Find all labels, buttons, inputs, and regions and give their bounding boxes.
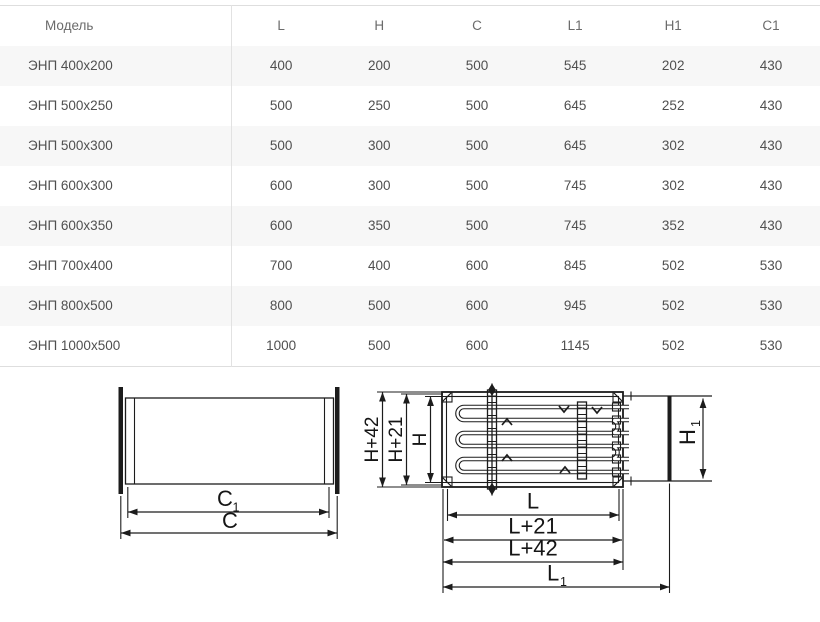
duct-flange-right bbox=[335, 387, 340, 494]
value-cell: 500 bbox=[428, 46, 526, 86]
value-cell: 545 bbox=[526, 46, 624, 86]
value-cell: 645 bbox=[526, 86, 624, 126]
value-cell: 430 bbox=[722, 206, 820, 246]
value-cell: 700 bbox=[231, 246, 330, 286]
value-cell: 400 bbox=[330, 246, 428, 286]
header-row: Модель L H C L1 H1 C1 bbox=[0, 6, 820, 47]
table-header: Модель L H C L1 H1 C1 bbox=[0, 6, 820, 47]
table-body: ЭНП 400x200 400 200 500 545 202 430 ЭНП … bbox=[0, 46, 820, 367]
column-header-model: Модель bbox=[0, 6, 231, 47]
value-cell: 350 bbox=[330, 206, 428, 246]
column-header-h1: H1 bbox=[624, 6, 722, 47]
value-cell: 352 bbox=[624, 206, 722, 246]
column-header-c1: C1 bbox=[722, 6, 820, 47]
value-cell: 745 bbox=[526, 206, 624, 246]
model-cell: ЭНП 1000x500 bbox=[0, 326, 231, 367]
dimension-h42-label: H+42 bbox=[362, 417, 383, 463]
value-cell: 500 bbox=[231, 126, 330, 166]
technical-drawings: C 1 C bbox=[0, 365, 820, 622]
value-cell: 530 bbox=[722, 286, 820, 326]
value-cell: 500 bbox=[428, 126, 526, 166]
value-cell: 600 bbox=[428, 246, 526, 286]
value-cell: 302 bbox=[624, 166, 722, 206]
value-cell: 500 bbox=[428, 206, 526, 246]
table-row: ЭНП 700x400 700 400 600 845 502 530 bbox=[0, 246, 820, 286]
value-cell: 530 bbox=[722, 326, 820, 367]
dimension-l1-label: L bbox=[547, 561, 559, 586]
dimension-l-label: L bbox=[527, 489, 539, 514]
dimensions-table: Модель L H C L1 H1 C1 ЭНП 400x200 400 20… bbox=[0, 5, 820, 367]
value-cell: 745 bbox=[526, 166, 624, 206]
dimension-h1: H 1 bbox=[675, 399, 703, 479]
value-cell: 600 bbox=[428, 286, 526, 326]
model-cell: ЭНП 600x300 bbox=[0, 166, 231, 206]
value-cell: 600 bbox=[231, 206, 330, 246]
page: Модель L H C L1 H1 C1 ЭНП 400x200 400 20… bbox=[0, 0, 820, 622]
value-cell: 300 bbox=[330, 166, 428, 206]
value-cell: 500 bbox=[428, 86, 526, 126]
value-cell: 302 bbox=[624, 126, 722, 166]
column-header-l1: L1 bbox=[526, 6, 624, 47]
dimension-h1-subscript: 1 bbox=[689, 420, 703, 427]
duct-flange-left bbox=[119, 387, 124, 494]
value-cell: 430 bbox=[722, 166, 820, 206]
value-cell: 845 bbox=[526, 246, 624, 286]
heater-drawing: H 1 H+42 H+21 H bbox=[362, 384, 712, 594]
model-cell: ЭНП 500x250 bbox=[0, 86, 231, 126]
value-cell: 430 bbox=[722, 126, 820, 166]
table-row: ЭНП 600x350 600 350 500 745 352 430 bbox=[0, 206, 820, 246]
value-cell: 945 bbox=[526, 286, 624, 326]
value-cell: 600 bbox=[231, 166, 330, 206]
table-row: ЭНП 500x250 500 250 500 645 252 430 bbox=[0, 86, 820, 126]
value-cell: 1145 bbox=[526, 326, 624, 367]
value-cell: 502 bbox=[624, 286, 722, 326]
value-cell: 200 bbox=[330, 46, 428, 86]
value-cell: 430 bbox=[722, 86, 820, 126]
model-cell: ЭНП 700x400 bbox=[0, 246, 231, 286]
value-cell: 500 bbox=[428, 166, 526, 206]
value-cell: 250 bbox=[330, 86, 428, 126]
column-header-c: C bbox=[428, 6, 526, 47]
value-cell: 800 bbox=[231, 286, 330, 326]
dimension-l42-label: L+42 bbox=[508, 536, 558, 561]
value-cell: 300 bbox=[330, 126, 428, 166]
dimension-l1-subscript: 1 bbox=[560, 575, 567, 589]
column-header-h: H bbox=[330, 6, 428, 47]
value-cell: 252 bbox=[624, 86, 722, 126]
dimension-h1-label: H bbox=[675, 429, 700, 445]
value-cell: 645 bbox=[526, 126, 624, 166]
table-row: ЭНП 500x300 500 300 500 645 302 430 bbox=[0, 126, 820, 166]
value-cell: 500 bbox=[330, 326, 428, 367]
model-cell: ЭНП 600x350 bbox=[0, 206, 231, 246]
table-row: ЭНП 600x300 600 300 500 745 302 430 bbox=[0, 166, 820, 206]
duct-drawing: C 1 C bbox=[119, 387, 340, 539]
value-cell: 400 bbox=[231, 46, 330, 86]
dimension-l1: L 1 bbox=[443, 561, 670, 590]
dimension-h21-label: H+21 bbox=[386, 417, 407, 463]
value-cell: 500 bbox=[231, 86, 330, 126]
dimension-h-label: H bbox=[410, 433, 431, 447]
table-row: ЭНП 400x200 400 200 500 545 202 430 bbox=[0, 46, 820, 86]
dimension-l: L bbox=[448, 489, 620, 516]
value-cell: 202 bbox=[624, 46, 722, 86]
column-header-l: L bbox=[231, 6, 330, 47]
value-cell: 1000 bbox=[231, 326, 330, 367]
dimension-h21: H+21 bbox=[386, 394, 407, 485]
value-cell: 500 bbox=[330, 286, 428, 326]
table-row: ЭНП 1000x500 1000 500 600 1145 502 530 bbox=[0, 326, 820, 367]
dimension-h: H bbox=[410, 397, 431, 483]
value-cell: 502 bbox=[624, 326, 722, 367]
value-cell: 430 bbox=[722, 46, 820, 86]
value-cell: 600 bbox=[428, 326, 526, 367]
model-cell: ЭНП 500x300 bbox=[0, 126, 231, 166]
dimension-h42: H+42 bbox=[362, 392, 383, 487]
model-cell: ЭНП 400x200 bbox=[0, 46, 231, 86]
duct-body bbox=[126, 398, 334, 484]
model-cell: ЭНП 800x500 bbox=[0, 286, 231, 326]
table-row: ЭНП 800x500 800 500 600 945 502 530 bbox=[0, 286, 820, 326]
value-cell: 502 bbox=[624, 246, 722, 286]
dimension-c-label: C bbox=[222, 508, 238, 533]
value-cell: 530 bbox=[722, 246, 820, 286]
